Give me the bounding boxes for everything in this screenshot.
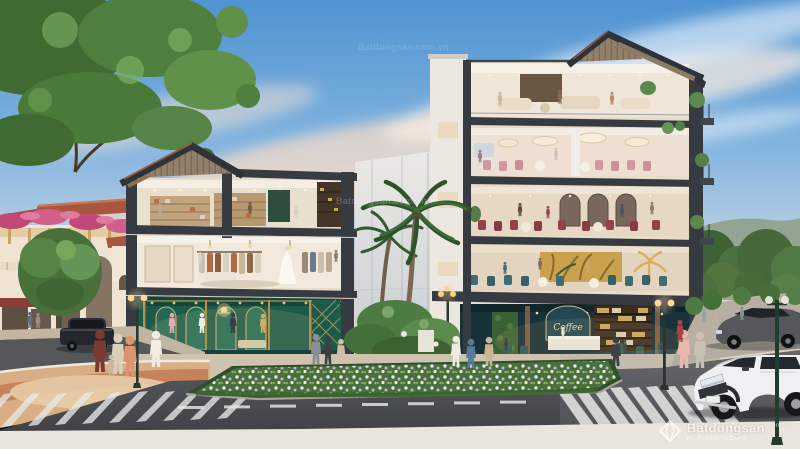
floor-lounge: [466, 64, 689, 117]
watermark-brand-line: Batdongsan.com.vn: [687, 420, 790, 434]
floor-salon: [466, 128, 689, 176]
watermark-brand: Batdongsan: [687, 420, 765, 435]
watermark-batdongsan: Batdongsan.com.vn by PropertyGuru: [659, 420, 790, 442]
floor-restaurant-red: [466, 187, 689, 236]
display-panel: [268, 190, 290, 222]
watermark-byline: by PropertyGuru: [687, 435, 790, 442]
floor-restaurant-teal: [466, 246, 689, 291]
right-shophouse: Coffee: [428, 31, 714, 372]
floor-bridal: [137, 236, 343, 288]
planter-pedestal: [418, 330, 434, 352]
batdongsan-diamond-icon: [659, 420, 681, 442]
watermark-text: Batdongsan.com.vn by PropertyGuru: [687, 420, 790, 442]
floor-retail: [137, 180, 343, 227]
scene-canvas: Coffee: [0, 0, 800, 449]
watermark-domain: .com.vn: [767, 423, 790, 429]
architectural-render-scene: Coffee: [0, 0, 800, 449]
